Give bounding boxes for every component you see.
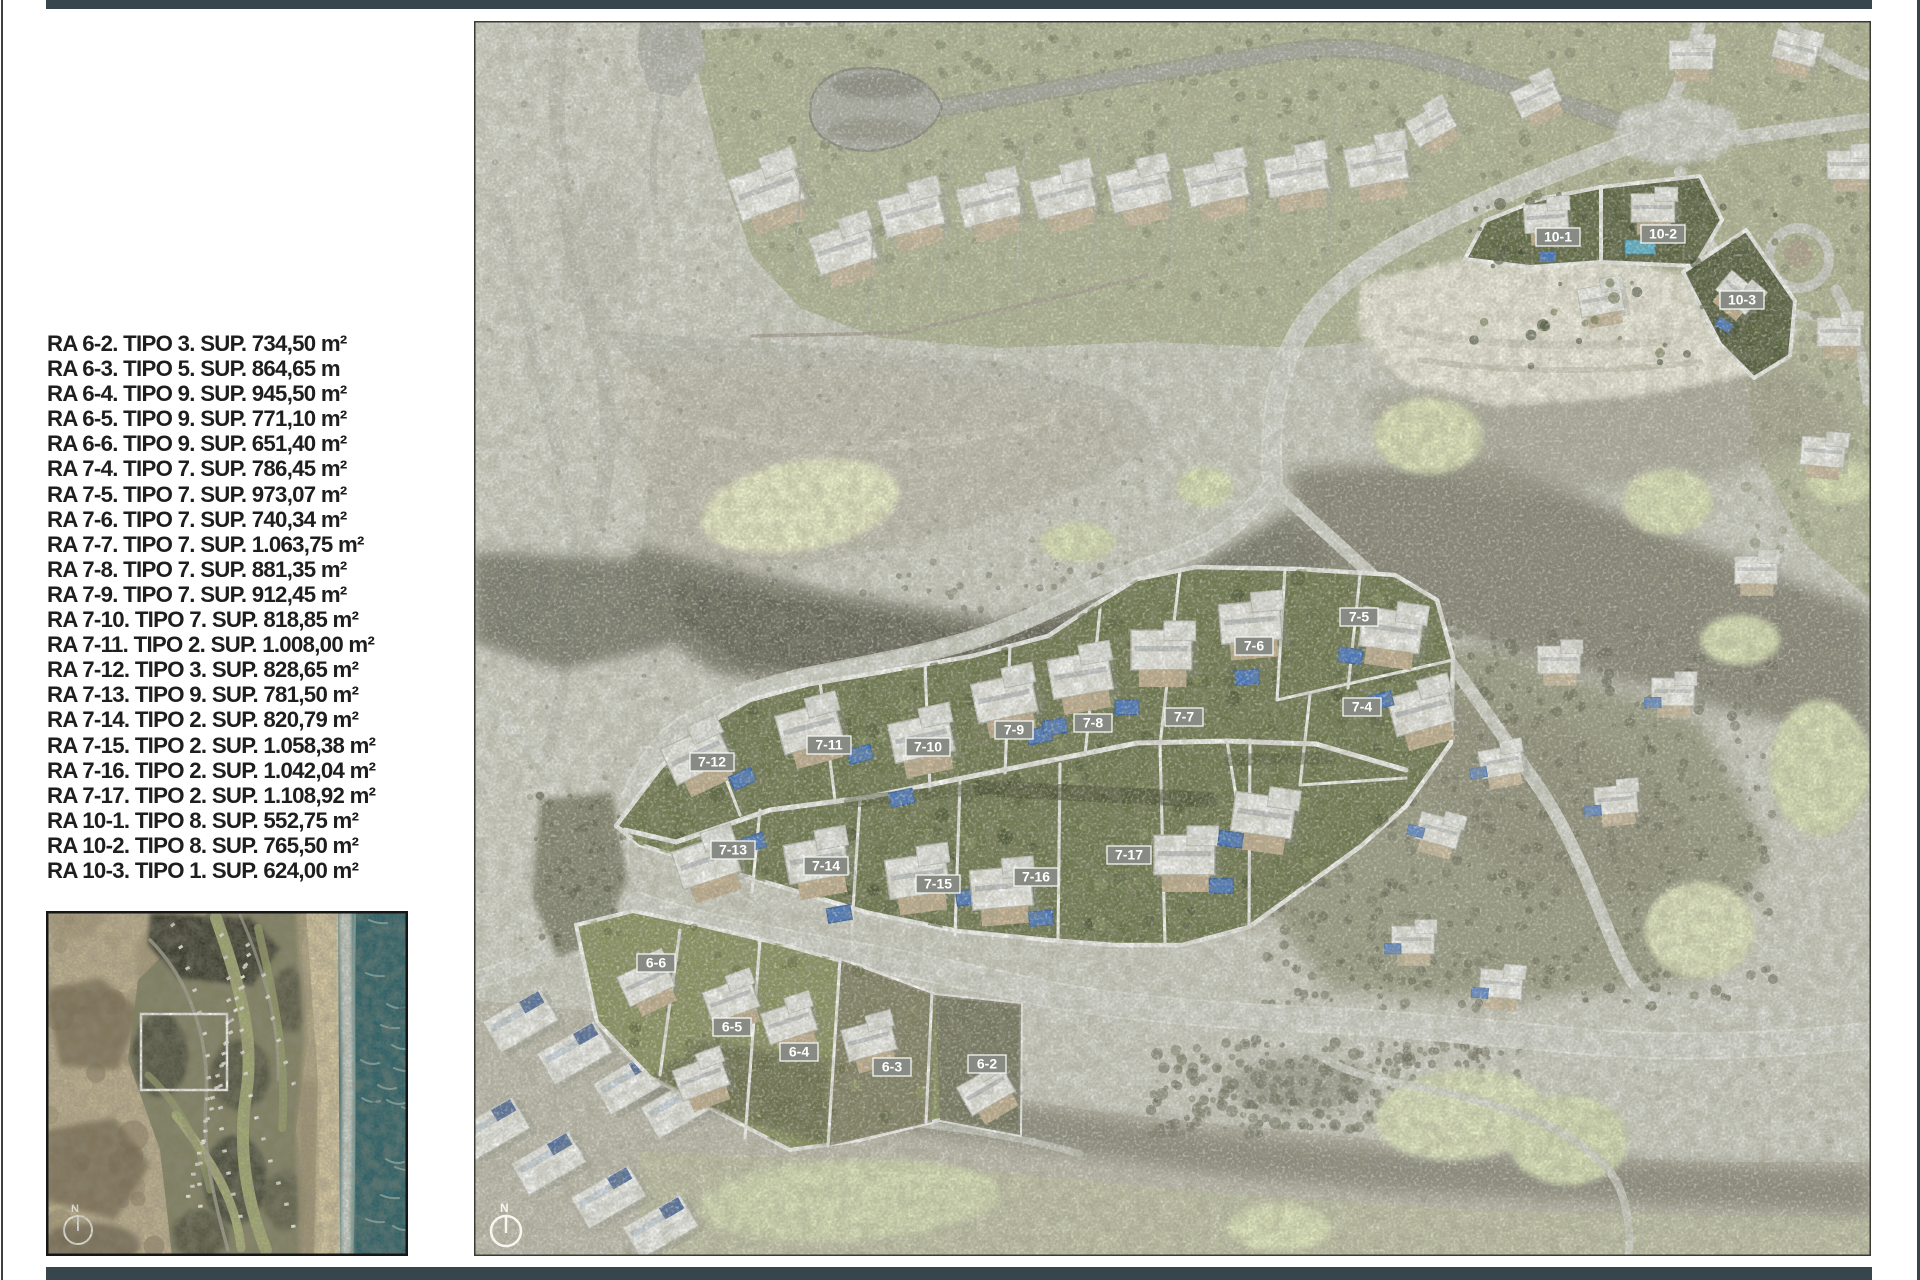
svg-text:6-3: 6-3 — [882, 1059, 902, 1075]
svg-text:6-5: 6-5 — [722, 1019, 742, 1035]
svg-text:7-11: 7-11 — [815, 737, 842, 753]
svg-text:N: N — [500, 1201, 509, 1215]
svg-text:6-6: 6-6 — [646, 955, 666, 971]
svg-text:7-9: 7-9 — [1004, 722, 1024, 738]
svg-text:10-3: 10-3 — [1728, 292, 1756, 308]
svg-text:6-2: 6-2 — [977, 1056, 997, 1072]
svg-text:7-4: 7-4 — [1352, 699, 1372, 715]
svg-text:7-7: 7-7 — [1174, 709, 1194, 725]
svg-text:7-15: 7-15 — [924, 876, 952, 892]
svg-text:10-1: 10-1 — [1544, 229, 1572, 245]
svg-text:7-10: 7-10 — [914, 739, 942, 755]
svg-text:7-5: 7-5 — [1349, 609, 1369, 625]
svg-text:7-13: 7-13 — [719, 842, 747, 858]
svg-text:7-8: 7-8 — [1083, 715, 1103, 731]
svg-text:10-2: 10-2 — [1649, 226, 1677, 242]
svg-text:7-6: 7-6 — [1244, 638, 1264, 654]
svg-text:6-4: 6-4 — [789, 1044, 809, 1060]
svg-text:7-16: 7-16 — [1022, 869, 1050, 885]
svg-text:7-17: 7-17 — [1115, 847, 1143, 863]
svg-text:7-14: 7-14 — [812, 858, 840, 874]
svg-text:7-12: 7-12 — [698, 754, 726, 770]
